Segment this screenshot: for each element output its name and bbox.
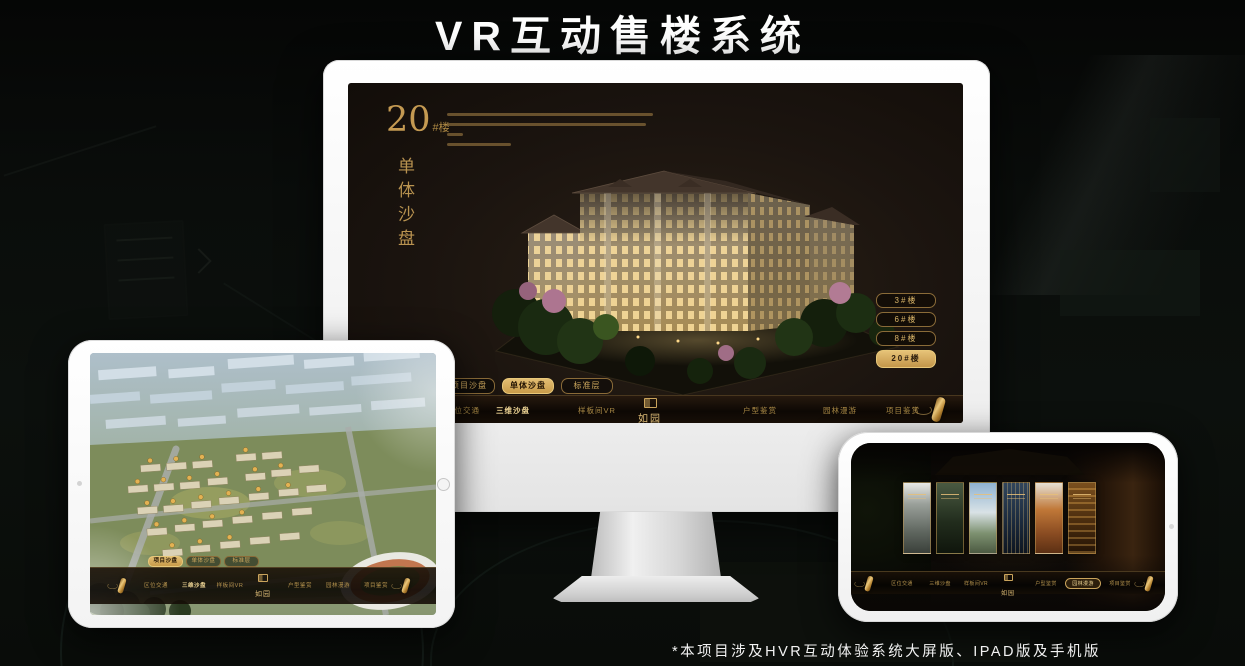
tab-single-sandbox[interactable]: 单体沙盘 bbox=[186, 556, 221, 567]
seal-icon bbox=[644, 398, 657, 408]
nav-item-floorplans[interactable]: 户型鉴赏 bbox=[282, 581, 318, 589]
main-navbar: 区位交通 三维沙盘 样板间VR 如园 户型鉴赏 园林漫游 项目鉴赏 bbox=[90, 567, 436, 604]
background-building-block bbox=[1060, 250, 1200, 316]
building-selector: 3#楼 6#楼 8#楼 20#楼 bbox=[876, 293, 936, 368]
nav-item-floorplans[interactable]: 户型鉴赏 bbox=[1029, 580, 1063, 587]
stage: VR互动售楼系统 20#楼 单体沙盘 bbox=[0, 0, 1245, 666]
footnote: *本项目涉及HVR互动体验系统大屏版、IPAD版及手机版 bbox=[672, 640, 1101, 661]
scroll-ornament-icon bbox=[1141, 575, 1155, 592]
brand-logo: 如园 bbox=[625, 398, 675, 423]
nav-item-showroom-vr[interactable]: 样板间VR bbox=[959, 580, 993, 587]
phone-screen: 区位交通 三维沙盘 样板间VR 如园 户型鉴赏 园林漫游 项目鉴赏 bbox=[851, 443, 1165, 611]
heading-subtitle-vertical: 单体沙盘 bbox=[392, 157, 417, 253]
nav-item-sandbox[interactable]: 三维沙盘 bbox=[923, 580, 957, 587]
nav-item-project-gallery[interactable]: 项目鉴赏 bbox=[358, 581, 394, 589]
pavilion-roof-silhouette bbox=[935, 449, 1085, 475]
nav-item-project-gallery[interactable]: 项目鉴赏 bbox=[1103, 580, 1137, 587]
gallery-panel[interactable] bbox=[1035, 482, 1063, 554]
background-sign bbox=[104, 220, 189, 320]
tab-project-sandbox[interactable]: 项目沙盘 bbox=[148, 556, 183, 567]
background-road-band bbox=[985, 55, 1245, 295]
building-button-20[interactable]: 20#楼 bbox=[876, 350, 936, 368]
gallery-panel[interactable] bbox=[1002, 482, 1030, 554]
scroll-ornament-icon bbox=[398, 577, 412, 594]
description-text-lines bbox=[447, 113, 653, 153]
camera-icon bbox=[77, 481, 82, 486]
tab-standard-floor[interactable]: 标准层 bbox=[561, 378, 613, 394]
tab-standard-floor[interactable]: 标准层 bbox=[224, 556, 259, 567]
background-road-line bbox=[4, 125, 157, 176]
nav-item-showroom-vr[interactable]: 样板间VR bbox=[572, 405, 622, 416]
phone-device: 区位交通 三维沙盘 样板间VR 如园 户型鉴赏 园林漫游 项目鉴赏 bbox=[838, 432, 1178, 622]
building-button-8[interactable]: 8#楼 bbox=[876, 331, 936, 346]
building-button-6[interactable]: 6#楼 bbox=[876, 312, 936, 327]
sandbox-sub-tabs: 项目沙盘 单体沙盘 标准层 bbox=[148, 556, 259, 567]
nav-item-floorplans[interactable]: 户型鉴赏 bbox=[735, 405, 785, 416]
interior-ceiling-shadow bbox=[851, 443, 1165, 483]
gallery-panel[interactable] bbox=[936, 482, 964, 554]
monitor-stand-base bbox=[553, 576, 759, 602]
main-navbar: 区位交通 三维沙盘 样板间VR 如园 户型鉴赏 园林漫游 项目鉴赏 bbox=[851, 571, 1165, 594]
camera-icon bbox=[1169, 524, 1174, 529]
tab-single-sandbox[interactable]: 单体沙盘 bbox=[502, 378, 554, 394]
tablet-screen: 项目沙盘 单体沙盘 标准层 区位交通 三维沙盘 样板间VR 如园 户型鉴赏 园林… bbox=[90, 353, 436, 615]
nav-item-garden-tour[interactable]: 园林漫游 bbox=[320, 581, 356, 589]
seal-icon bbox=[258, 574, 268, 582]
scroll-ornament-icon bbox=[861, 575, 875, 592]
scroll-ornament-icon bbox=[926, 396, 948, 423]
gallery-panel[interactable] bbox=[969, 482, 997, 554]
brand-logo: 如园 bbox=[993, 574, 1023, 600]
tablet-device: 项目沙盘 单体沙盘 标准层 区位交通 三维沙盘 样板间VR 如园 户型鉴赏 园林… bbox=[68, 340, 455, 628]
nav-item-location[interactable]: 区位交通 bbox=[138, 581, 174, 589]
building-button-3[interactable]: 3#楼 bbox=[876, 293, 936, 308]
gallery-panels bbox=[903, 482, 1096, 554]
sandbox-sub-tabs: 项目沙盘 单体沙盘 标准层 bbox=[443, 378, 613, 394]
gallery-panel[interactable] bbox=[1068, 482, 1096, 554]
nav-item-showroom-vr[interactable]: 样板间VR bbox=[212, 581, 248, 589]
gallery-panel[interactable] bbox=[903, 482, 931, 554]
nav-item-location[interactable]: 区位交通 bbox=[885, 580, 919, 587]
nav-item-garden-tour[interactable]: 园林漫游 bbox=[1065, 578, 1101, 589]
scroll-ornament-icon bbox=[114, 577, 128, 594]
brand-logo: 如园 bbox=[248, 574, 278, 601]
seal-icon bbox=[1004, 574, 1013, 581]
background-chevron bbox=[186, 248, 211, 273]
nav-item-sandbox[interactable]: 三维沙盘 bbox=[488, 405, 538, 416]
page-title: VR互动售楼系统 bbox=[0, 2, 1245, 62]
building-number: 20 bbox=[386, 100, 431, 140]
nav-item-sandbox[interactable]: 三维沙盘 bbox=[176, 581, 212, 589]
monitor-stand-neck bbox=[591, 512, 721, 578]
background-building-block bbox=[1150, 118, 1220, 192]
home-button[interactable] bbox=[437, 478, 450, 491]
building-heading: 20#楼 bbox=[386, 103, 450, 138]
nav-item-garden-tour[interactable]: 园林漫游 bbox=[815, 405, 865, 416]
